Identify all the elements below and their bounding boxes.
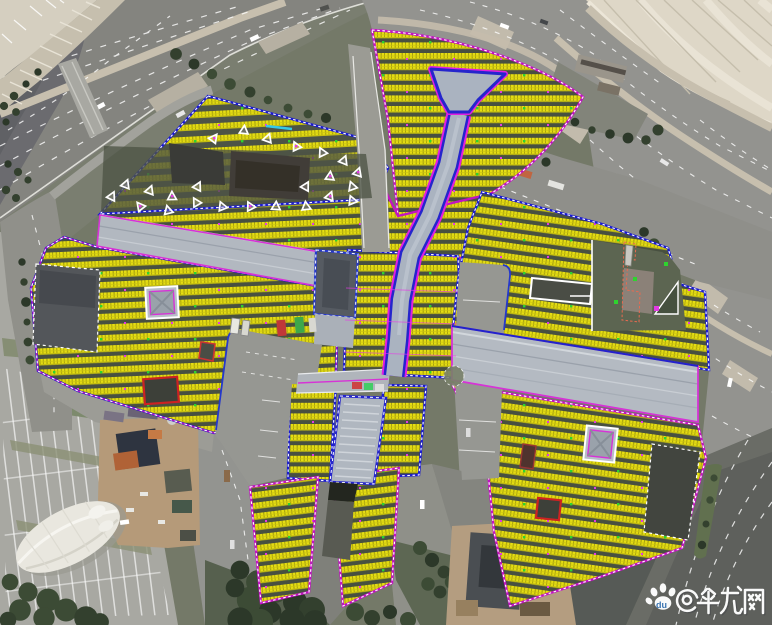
svg-text:du: du [656,600,667,610]
